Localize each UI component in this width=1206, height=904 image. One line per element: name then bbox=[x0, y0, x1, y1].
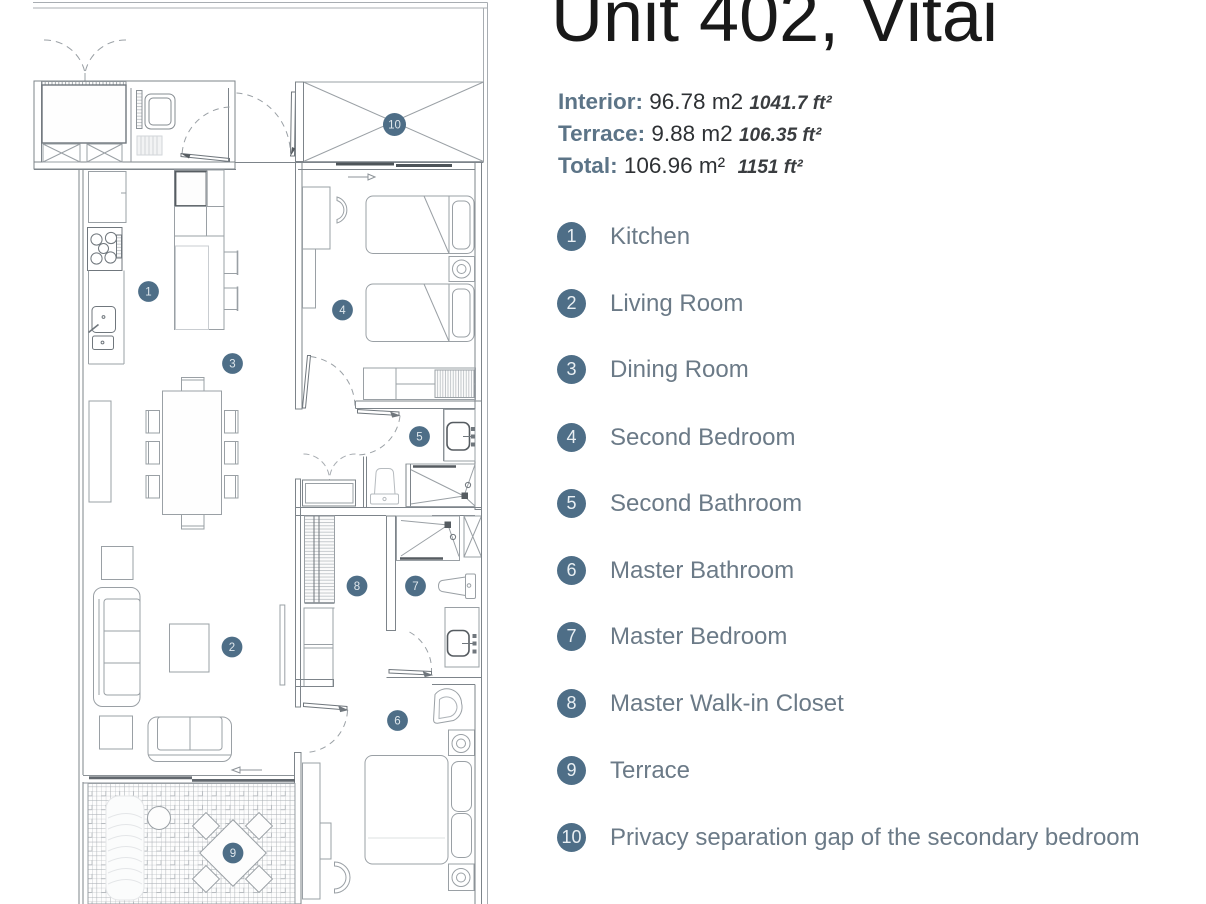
svg-text:6: 6 bbox=[394, 716, 400, 728]
svg-text:4: 4 bbox=[339, 305, 346, 317]
svg-text:5: 5 bbox=[416, 432, 422, 444]
svg-text:8: 8 bbox=[354, 581, 360, 593]
svg-text:2: 2 bbox=[229, 642, 235, 654]
svg-text:1: 1 bbox=[145, 287, 151, 299]
svg-text:9: 9 bbox=[230, 848, 236, 860]
svg-text:10: 10 bbox=[388, 120, 401, 132]
svg-text:7: 7 bbox=[412, 581, 418, 593]
svg-text:3: 3 bbox=[229, 359, 235, 371]
